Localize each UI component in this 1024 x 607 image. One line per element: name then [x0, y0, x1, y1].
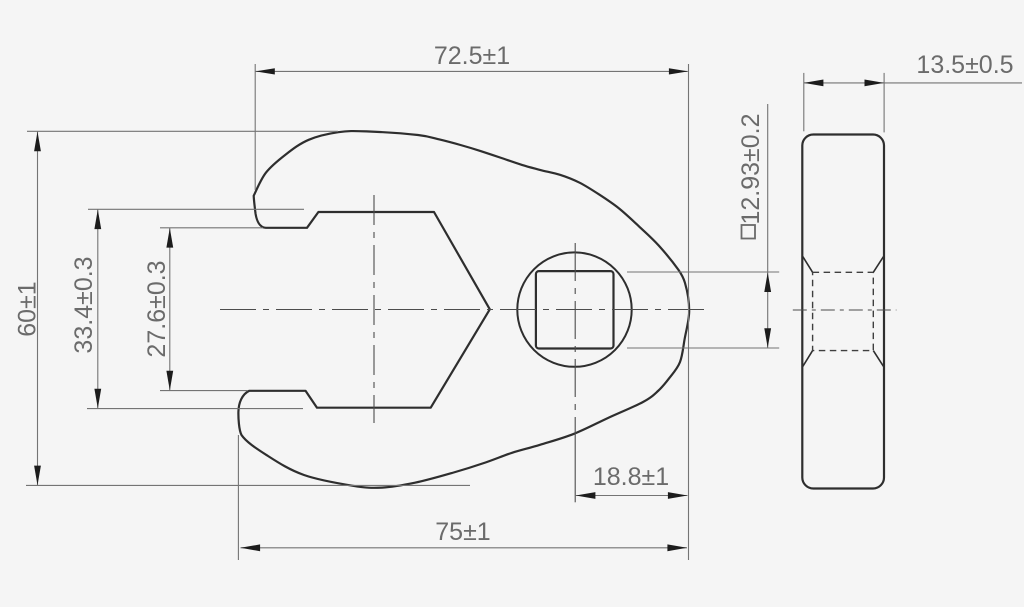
svg-text:60±1: 60±1 — [14, 281, 42, 336]
svg-text:75±1: 75±1 — [435, 518, 490, 546]
svg-text:18.8±1: 18.8±1 — [593, 463, 669, 491]
svg-text:72.5±1: 72.5±1 — [434, 42, 510, 70]
svg-text:13.5±0.5: 13.5±0.5 — [916, 51, 1013, 79]
svg-text:33.4±0.3: 33.4±0.3 — [70, 256, 98, 353]
svg-text:12.93±0.2: 12.93±0.2 — [737, 113, 765, 224]
svg-text:27.6±0.3: 27.6±0.3 — [143, 260, 171, 357]
